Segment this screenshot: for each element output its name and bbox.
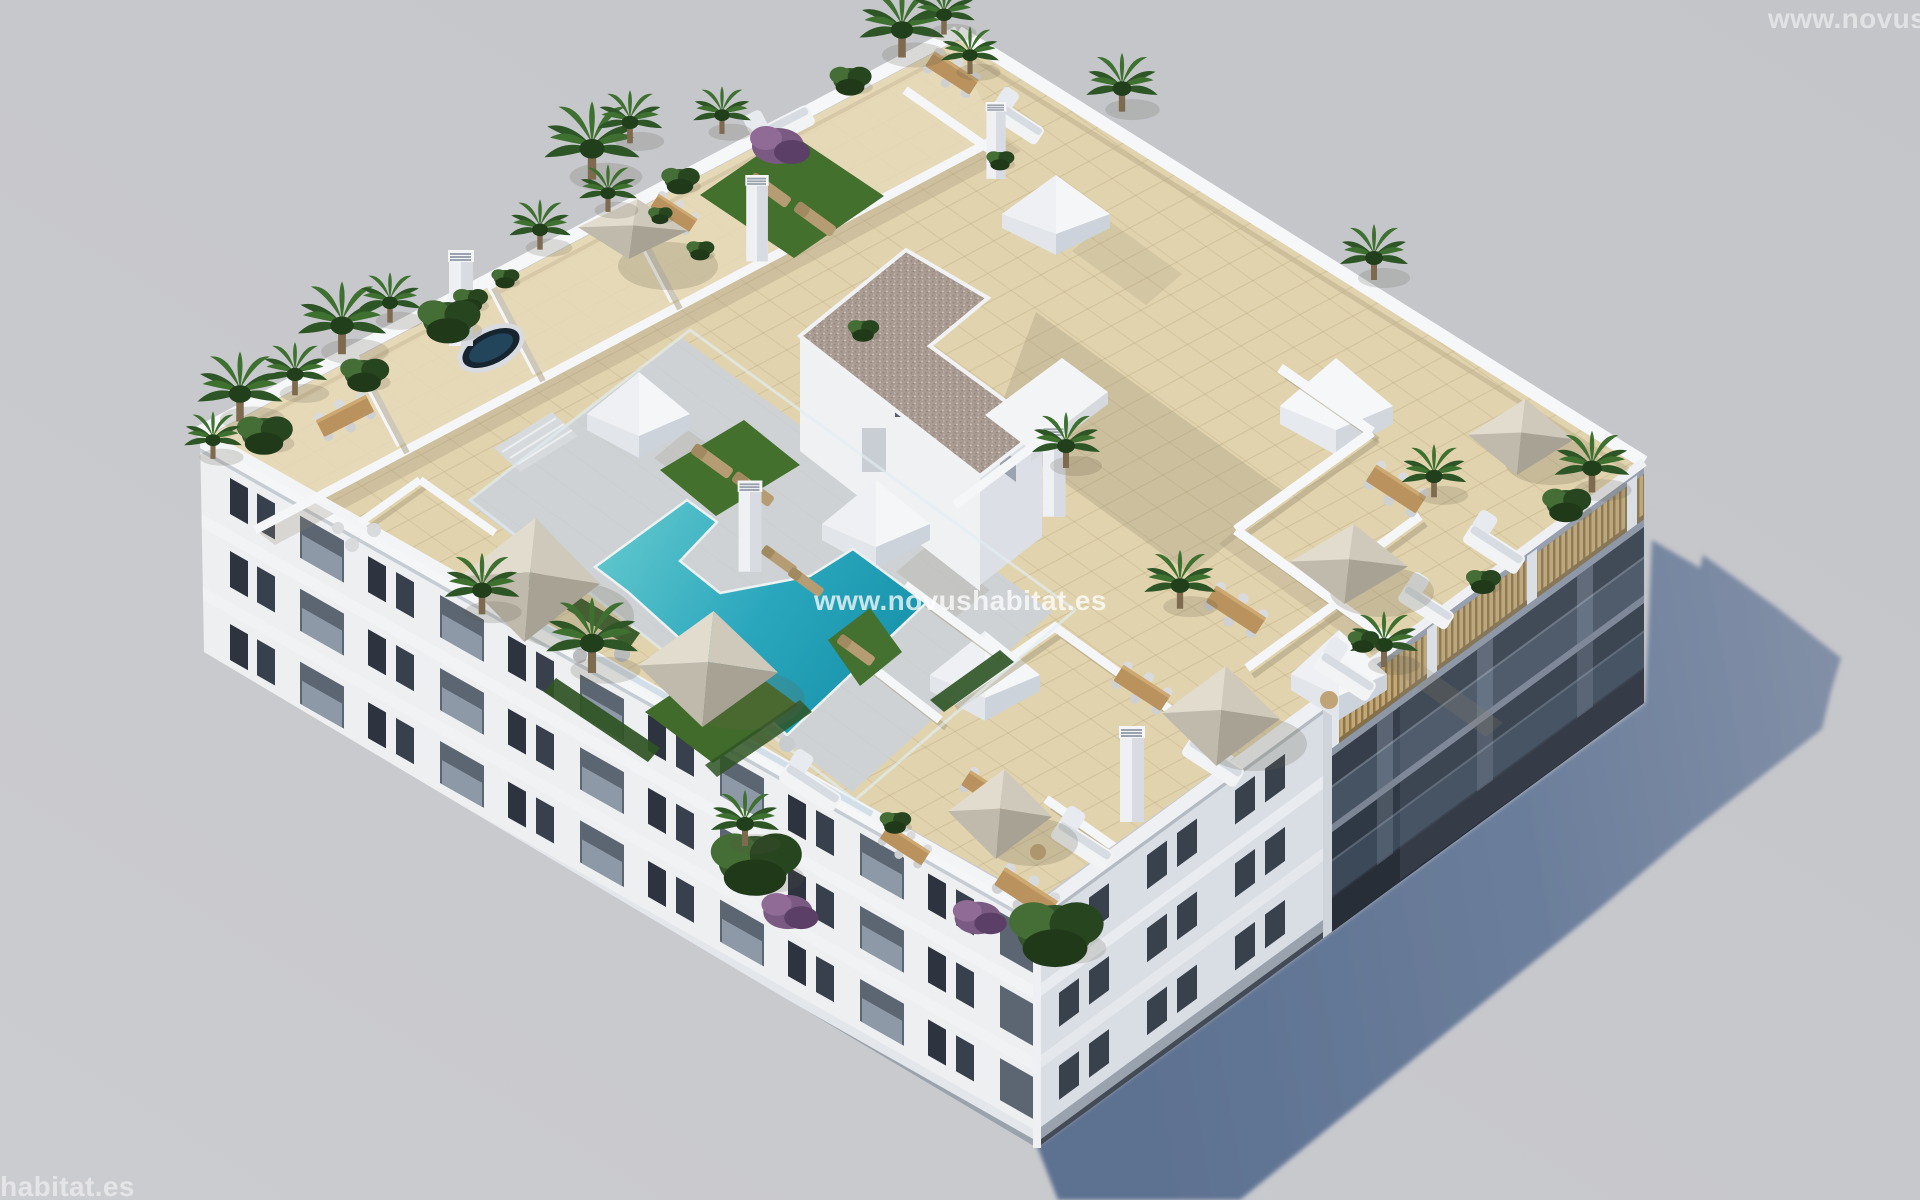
svg-text:www.novushabitat.es: www.novushabitat.es (0, 1171, 135, 1200)
svg-text:www.novushabitat.es: www.novushabitat.es (1767, 3, 1920, 34)
svg-text:www.novushabitat.es: www.novushabitat.es (813, 585, 1107, 616)
